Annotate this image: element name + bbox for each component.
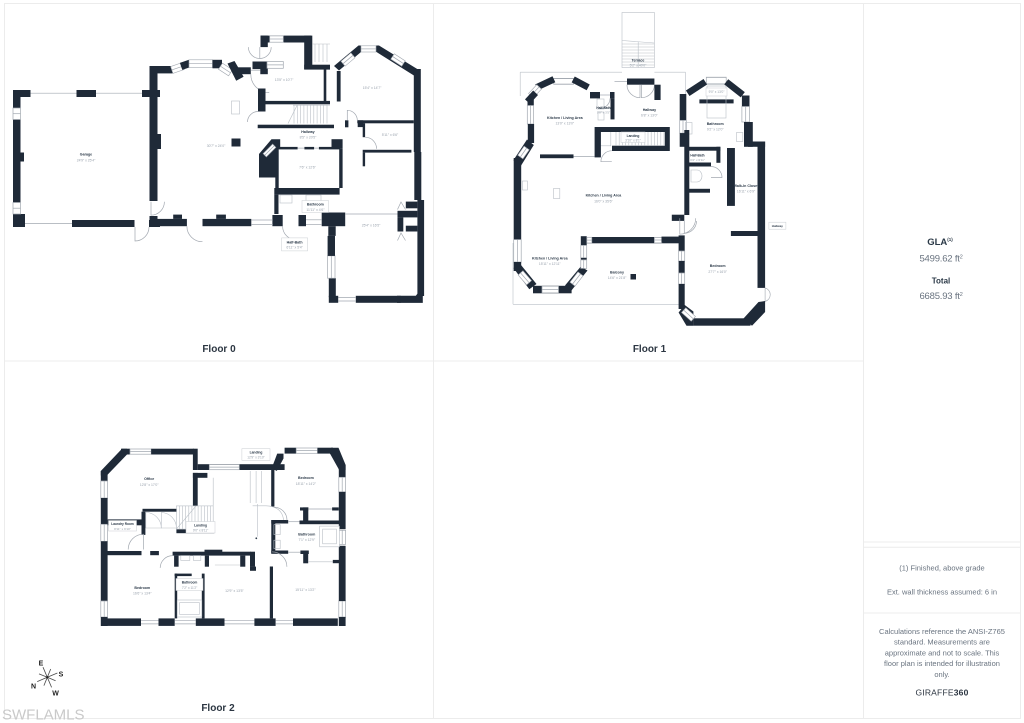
svg-text:5'2" x 40'0": 5'2" x 40'0" <box>630 64 648 68</box>
svg-text:8'11" x 9'10": 8'11" x 9'10" <box>114 527 131 531</box>
svg-text:12'9" x 13'5": 12'9" x 13'5" <box>225 589 244 593</box>
svg-text:Bathroom: Bathroom <box>707 122 724 126</box>
svg-text:Kitchen / Living Area: Kitchen / Living Area <box>586 194 623 198</box>
svg-text:12'9" x 3'10": 12'9" x 3'10" <box>247 456 264 460</box>
svg-text:Ext. wall thickness assumed: 6: Ext. wall thickness assumed: 6 in <box>887 588 997 597</box>
svg-text:Bedroom: Bedroom <box>298 476 314 480</box>
svg-text:Office: Office <box>144 477 154 481</box>
svg-text:N: N <box>31 684 36 691</box>
svg-text:9'0" x 13'0": 9'0" x 13'0" <box>709 90 725 94</box>
svg-text:E: E <box>39 661 44 668</box>
svg-text:floor plan is intended for ill: floor plan is intended for illustration <box>884 659 1000 668</box>
svg-text:Kitchen / Living Area: Kitchen / Living Area <box>547 116 584 120</box>
svg-text:Hallway: Hallway <box>643 108 656 112</box>
svg-text:Half-Bath: Half-Bath <box>287 240 303 244</box>
svg-text:12'8" x 17'0": 12'8" x 17'0" <box>140 483 159 487</box>
svg-text:Bedroom: Bedroom <box>134 586 150 590</box>
svg-text:Laundry Room: Laundry Room <box>111 522 134 526</box>
svg-text:standard. Measurements are: standard. Measurements are <box>894 638 990 647</box>
svg-text:5499.62 ft2: 5499.62 ft2 <box>919 254 962 265</box>
svg-text:Bedroom: Bedroom <box>710 264 726 268</box>
svg-text:Bathroom: Bathroom <box>298 533 315 537</box>
svg-text:13'5" x 10'7": 13'5" x 10'7" <box>275 78 294 82</box>
svg-text:6'11" x 5'4": 6'11" x 5'4" <box>286 246 303 250</box>
svg-text:24'9" x 25'4": 24'9" x 25'4" <box>77 159 96 163</box>
svg-text:Terrace: Terrace <box>632 59 645 63</box>
svg-text:3'10" x 8'1": 3'10" x 8'1" <box>625 138 641 142</box>
svg-text:25'4" x 16'5": 25'4" x 16'5" <box>362 224 381 228</box>
svg-text:16'0" x 35'6": 16'0" x 35'6" <box>594 200 613 204</box>
svg-text:15'11" x 12'11": 15'11" x 12'11" <box>539 262 562 266</box>
svg-text:Landing: Landing <box>627 134 640 138</box>
svg-text:Half-Bath: Half-Bath <box>596 106 610 110</box>
svg-text:11'11" x 4'6": 11'11" x 4'6" <box>306 208 325 212</box>
svg-text:7'1" x 12'9": 7'1" x 12'9" <box>298 538 316 542</box>
svg-text:18'11" x 14'2": 18'11" x 14'2" <box>296 482 317 486</box>
svg-text:27'7" x 16'0": 27'7" x 16'0" <box>708 270 727 274</box>
svg-text:Garage: Garage <box>80 153 92 157</box>
svg-text:9'0" x 8'11": 9'0" x 8'11" <box>193 528 208 532</box>
svg-text:6'8" x 13'0": 6'8" x 13'0" <box>641 114 659 118</box>
svg-text:S: S <box>59 672 64 679</box>
svg-text:Hallway: Hallway <box>301 130 314 134</box>
svg-text:only.: only. <box>934 670 949 679</box>
svg-text:W: W <box>52 691 59 698</box>
svg-text:3'4" x 6'11": 3'4" x 6'11" <box>690 158 705 162</box>
svg-text:15'4" x 14'7": 15'4" x 14'7" <box>363 86 382 90</box>
svg-text:Walk-In Closet: Walk-In Closet <box>734 184 759 188</box>
svg-text:7'6" x 12'6": 7'6" x 12'6" <box>299 166 317 170</box>
svg-text:13'0" x 13'0": 13'0" x 13'0" <box>555 122 574 126</box>
svg-text:9'2" x 12'0": 9'2" x 12'0" <box>707 128 725 132</box>
svg-text:Floor 2: Floor 2 <box>201 703 235 714</box>
svg-text:(1) Finished, above grade: (1) Finished, above grade <box>899 564 984 573</box>
svg-text:GIRAFFE360: GIRAFFE360 <box>915 687 968 697</box>
svg-text:Calculations reference the ANS: Calculations reference the ANSI-Z765 <box>879 627 1005 636</box>
svg-text:approximate and not to scale.: approximate and not to scale. This <box>885 648 1000 657</box>
svg-text:Total: Total <box>932 277 951 286</box>
svg-text:7'2" x 11'2": 7'2" x 11'2" <box>182 586 197 590</box>
svg-text:Kitchen / Living Area: Kitchen / Living Area <box>532 257 569 261</box>
svg-text:Floor 0: Floor 0 <box>202 344 236 355</box>
svg-text:8'5" x 20'5": 8'5" x 20'5" <box>300 136 318 140</box>
svg-text:Hallway: Hallway <box>772 224 784 228</box>
svg-text:15'11" x 13'2": 15'11" x 13'2" <box>295 588 316 592</box>
svg-text:Landing: Landing <box>250 451 263 455</box>
svg-text:SWFLAMLS: SWFLAMLS <box>2 707 85 723</box>
svg-text:Balcony: Balcony <box>610 271 624 275</box>
svg-text:Bathroom: Bathroom <box>307 203 324 207</box>
svg-text:Bathroom: Bathroom <box>182 581 198 585</box>
svg-text:16'6" x 13'4": 16'6" x 13'4" <box>133 592 152 596</box>
svg-text:6685.93 ft2: 6685.93 ft2 <box>919 291 962 302</box>
svg-text:14'6" x 21'8": 14'6" x 21'8" <box>608 276 627 280</box>
svg-text:Landing: Landing <box>194 524 207 528</box>
svg-text:5'11" x 6'6": 5'11" x 6'6" <box>382 133 399 137</box>
svg-text:30'7" x 24'0": 30'7" x 24'0" <box>207 144 226 148</box>
svg-text:16'11" x 6'9": 16'11" x 6'9" <box>737 190 756 194</box>
svg-text:Floor 1: Floor 1 <box>633 344 667 355</box>
svg-text:Half-Bath: Half-Bath <box>690 154 704 158</box>
svg-text:5'8" x 3'5": 5'8" x 3'5" <box>597 111 610 115</box>
